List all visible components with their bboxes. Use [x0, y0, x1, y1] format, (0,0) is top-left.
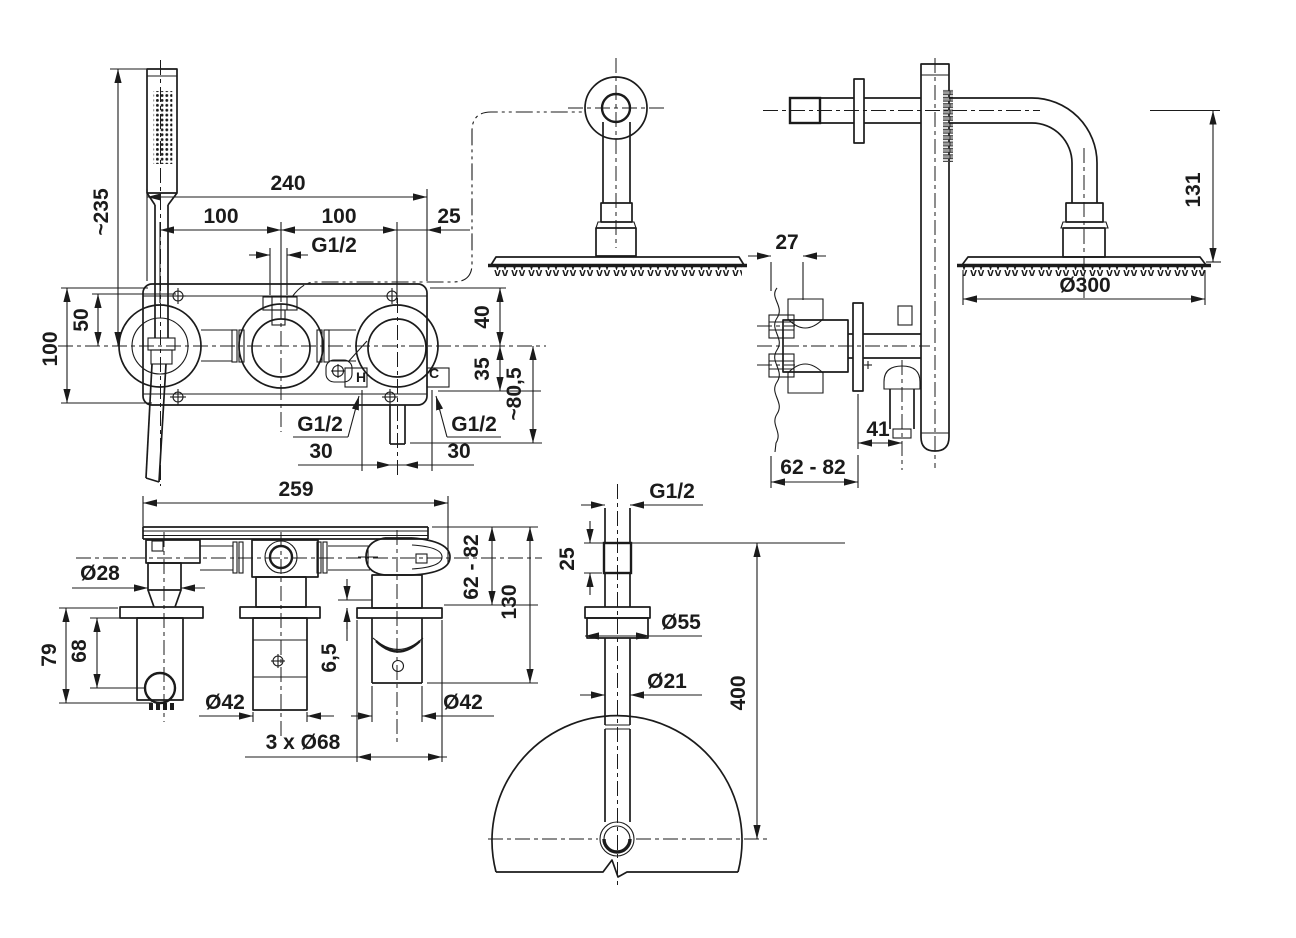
valve-flange	[240, 607, 320, 618]
spray-face-side	[943, 89, 953, 162]
dim-label: 3 x Ø68	[266, 731, 341, 754]
dim-label: 62 - 82	[460, 534, 483, 599]
hand-shower-side	[921, 58, 953, 468]
dim-label: ~235	[90, 188, 113, 236]
overhead-shower-front-view	[488, 58, 747, 276]
dim-label: 25	[556, 547, 579, 571]
dim-label: 25	[437, 205, 461, 228]
holder-flange	[120, 607, 203, 618]
shower-system-technical-drawing: H C ~235 240 100 100 25	[0, 0, 1296, 938]
spray-nozzles	[492, 267, 742, 276]
dim-thread-length: 25	[556, 521, 845, 595]
dim-label: 41	[866, 418, 890, 441]
dim-label: Ø28	[80, 562, 120, 585]
leader-hot-thread: G1/2	[293, 396, 359, 437]
dim-label: 79	[38, 643, 61, 666]
hot-marker-label: H	[356, 369, 366, 385]
holder-port-plan	[120, 532, 203, 722]
spout-port-plan	[357, 530, 450, 742]
hand-shower-outlet	[145, 673, 175, 703]
dim-arm-drop: 131	[1150, 111, 1221, 263]
dim-label: 100	[321, 205, 356, 228]
concealed-valve-side	[757, 288, 930, 470]
lever-slot	[272, 310, 285, 325]
dim-label: 131	[1182, 172, 1205, 207]
ceiling-arm-view: G1/2 25 Ø55 Ø21 400	[488, 480, 845, 886]
hand-shower	[146, 69, 177, 482]
leader-cold-thread: G1/2	[436, 396, 501, 437]
elbow-outer	[412, 538, 450, 575]
dim-label: Ø55	[661, 611, 701, 634]
cold-marker-label: C	[429, 365, 439, 381]
dim-label: 6,5	[318, 643, 341, 673]
dim-label: G1/2	[451, 413, 497, 436]
dim-label: G1/2	[297, 413, 343, 436]
lever-knob	[898, 306, 912, 325]
dim-outlet-drop-upper: 40	[430, 288, 506, 346]
spout-flange	[357, 608, 442, 618]
dim-label: G1/2	[311, 234, 357, 257]
dim-label: Ø300	[1059, 274, 1110, 297]
wall-section-line	[775, 288, 780, 452]
dim-supply-embed-depth: 27	[748, 231, 826, 300]
dim-spout-offset: 6,5	[318, 579, 372, 673]
dim-wall-depth-range-side: 62 - 82	[771, 455, 858, 488]
dim-label: 130	[498, 584, 521, 619]
escutcheon-edge	[853, 303, 863, 391]
dim-label: G1/2	[649, 480, 695, 503]
dim-label: 40	[471, 305, 494, 328]
side-view: 27 131 Ø300 41 62 - 82	[748, 58, 1221, 488]
dim-label: 400	[727, 675, 750, 710]
dim-flange-diameter: Ø55	[585, 611, 702, 636]
dim-label: ~80,5	[503, 367, 526, 420]
dim-label: 100	[39, 331, 62, 366]
dim-spout-diameter: Ø42	[351, 686, 494, 722]
dim-spout-projection: 41	[858, 394, 902, 449]
dim-label: 259	[278, 478, 313, 501]
dim-holder-drop: 68	[68, 618, 144, 688]
plan-view: 259 Ø28 79 68 Ø42	[38, 478, 542, 762]
valve-shaft	[253, 618, 307, 710]
dim-label: 62 - 82	[780, 456, 845, 479]
dim-pipe-diameter: Ø21	[580, 670, 702, 695]
dim-label: Ø42	[205, 691, 245, 714]
dim-arm-length: 400	[727, 543, 757, 839]
dim-label: 30	[309, 440, 332, 463]
dim-ceiling-thread: G1/2	[581, 480, 703, 505]
dim-label: Ø21	[647, 670, 687, 693]
spray-face-dots	[154, 91, 173, 164]
dim-label: 35	[471, 357, 494, 381]
dim-label: 240	[270, 172, 305, 195]
dim-valve-diameter: Ø42	[199, 691, 334, 722]
dim-label: 50	[70, 308, 93, 331]
dim-holder-total-drop: 79	[38, 608, 152, 703]
dim-label: 30	[447, 440, 470, 463]
dim-holder-diameter: Ø28	[72, 562, 205, 588]
drawing-sheet: H C ~235 240 100 100 25	[0, 0, 1296, 938]
cover-plate	[143, 284, 449, 444]
dim-label: Ø42	[443, 691, 483, 714]
dim-label: 27	[775, 231, 798, 254]
dim-label: 68	[68, 639, 91, 663]
dim-escutcheons: 3 x Ø68	[245, 620, 447, 762]
dim-label: 100	[203, 205, 238, 228]
